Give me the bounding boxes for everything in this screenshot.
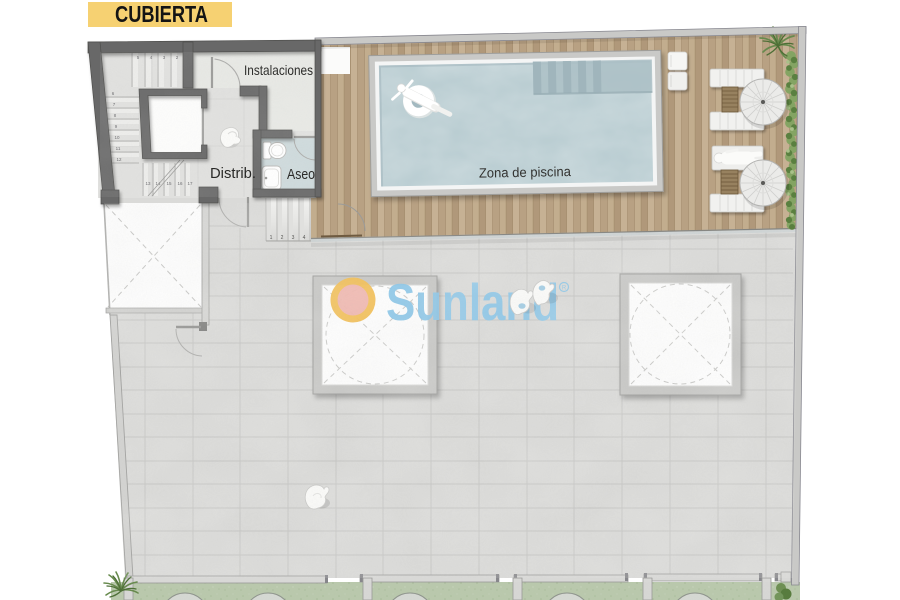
svg-text:Zona de piscina: Zona de piscina	[479, 164, 572, 181]
svg-text:3: 3	[292, 235, 295, 241]
svg-text:CUBIERTA: CUBIERTA	[115, 1, 208, 27]
svg-text:1: 1	[270, 235, 273, 241]
svg-text:4: 4	[303, 235, 306, 241]
svg-text:2: 2	[281, 235, 284, 241]
